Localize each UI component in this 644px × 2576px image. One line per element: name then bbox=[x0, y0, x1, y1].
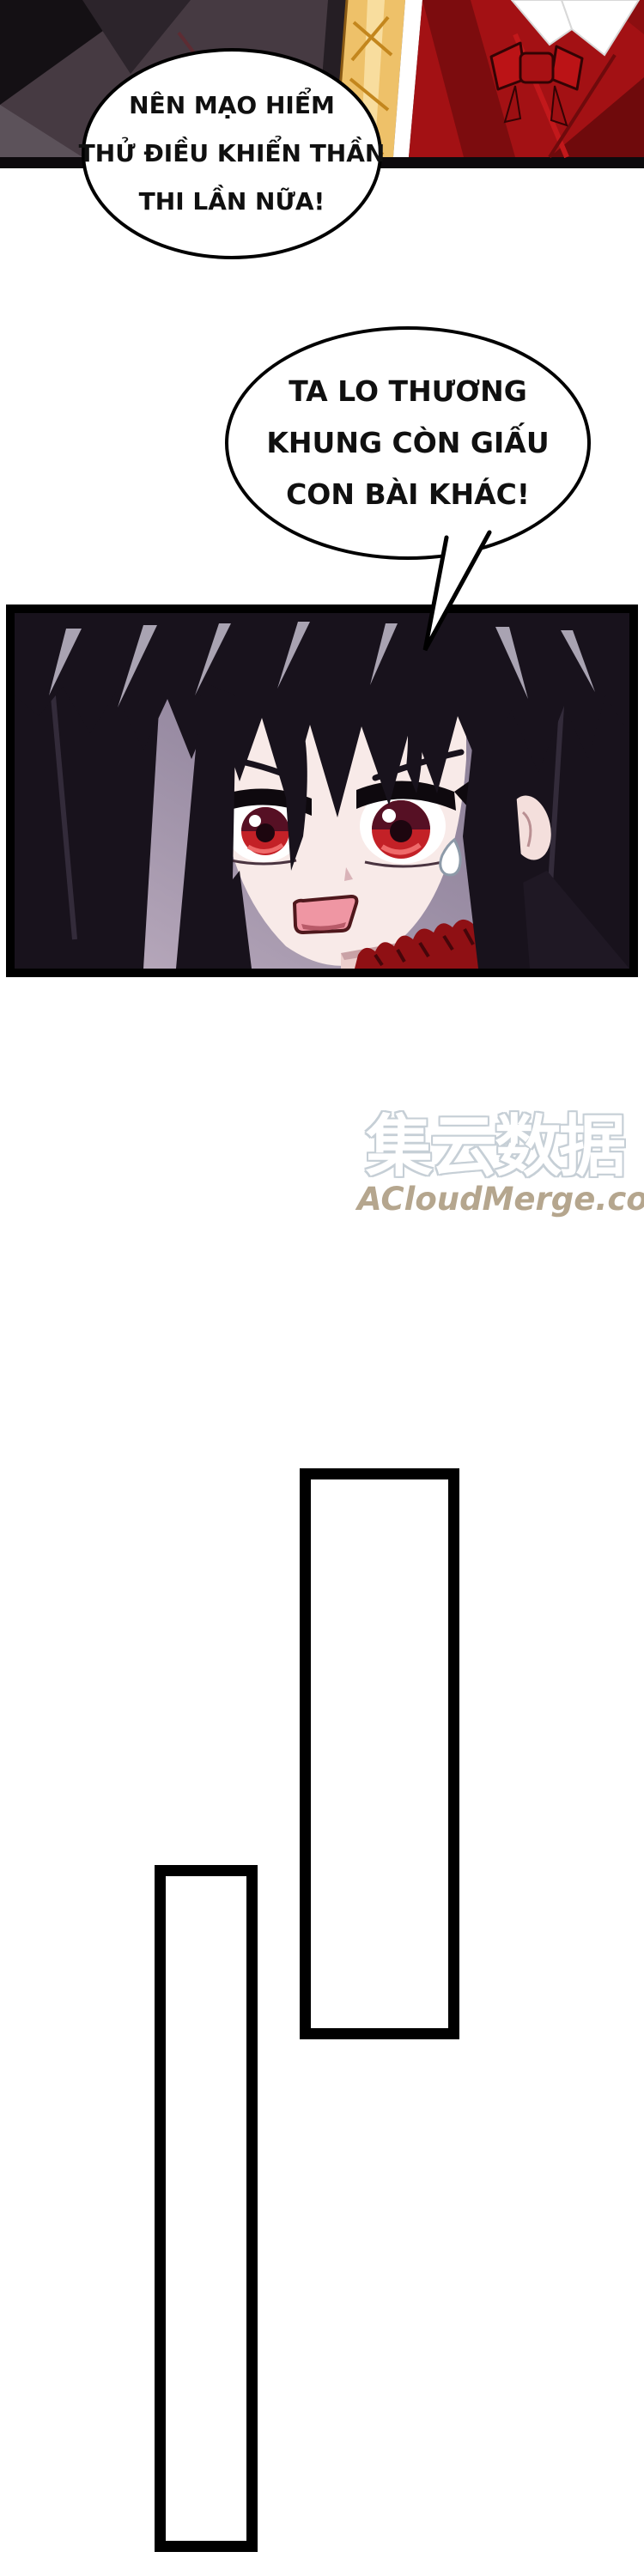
watermark-site-text: ACloudMerge.com bbox=[357, 1183, 632, 1216]
watermark: 集云数据 ACloudMerge.com bbox=[357, 1109, 632, 1216]
empty-frame-2 bbox=[155, 1865, 258, 2552]
girl-panel-drawing bbox=[15, 613, 629, 969]
speech-bubble-1: NÊN MẠO HIỂM THỬ ĐIỀU KHIỂN THẦN THI LẦN… bbox=[82, 48, 382, 259]
watermark-logo-text: 集云数据 bbox=[357, 1109, 632, 1185]
bubble-1-line-2: THỬ ĐIỀU KHIỂN THẦN bbox=[79, 130, 386, 178]
bubble-2-line-2: KHUNG CÒN GIẤU bbox=[266, 417, 549, 469]
girl-art-panel bbox=[6, 605, 638, 977]
girl-mouth bbox=[295, 896, 356, 933]
bubble-2-line-1: TA LO THƯƠNG bbox=[289, 366, 527, 417]
bubble-1-line-3: THI LẦN NỮA! bbox=[139, 178, 325, 226]
bubble-1-line-1: NÊN MẠO HIỂM bbox=[129, 82, 335, 130]
comic-page: NÊN MẠO HIỂM THỬ ĐIỀU KHIỂN THẦN THI LẦN… bbox=[0, 0, 644, 2576]
bubble-2-line-3: CON BÀI KHÁC! bbox=[286, 469, 530, 520]
speech-tail bbox=[391, 513, 519, 664]
empty-frame-1 bbox=[300, 1468, 459, 2039]
